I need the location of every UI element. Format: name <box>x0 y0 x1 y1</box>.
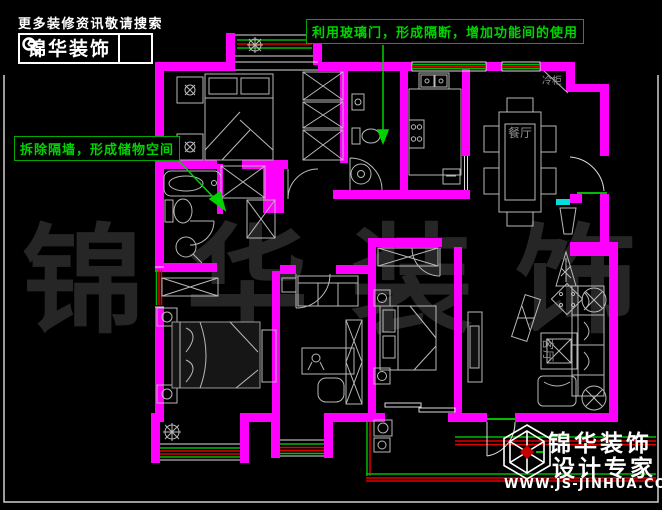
footer-url: WWW.JS-JINHUA.COM <box>504 477 662 492</box>
label-dining: 餐厅 <box>508 125 532 140</box>
label-freezer: 冷柜 <box>542 74 562 87</box>
header-tagline: 更多装修资讯敬请搜索 <box>18 13 163 32</box>
header-brand-box: 锦华装饰 <box>18 33 153 64</box>
room-bathroom-top <box>350 94 382 190</box>
balcony-washer <box>374 420 392 452</box>
annotation-glass-door: 利用玻璃门，形成隔断，增加功能间的使用 <box>306 19 584 44</box>
search-icon <box>118 35 151 62</box>
room-kitchen <box>409 73 468 190</box>
room-bedroom-top-left <box>177 72 343 160</box>
door-bedroom1 <box>288 169 318 199</box>
label-living: 客厅 <box>541 338 556 362</box>
room-dining <box>484 71 604 234</box>
screenshot-root: 锦 华 装 饰 <box>0 0 662 510</box>
annotation-demolish-wall: 拆除隔墙，形成储物空间 <box>14 136 180 161</box>
